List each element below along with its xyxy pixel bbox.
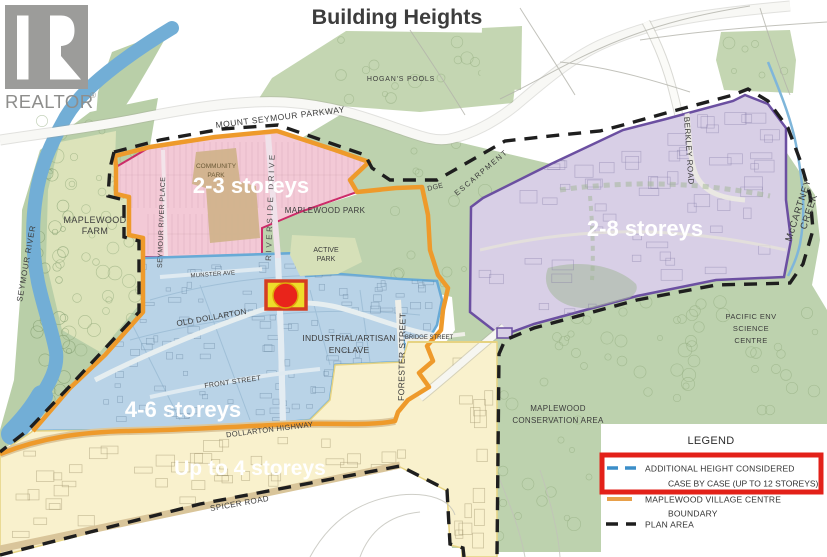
svg-text:INDUSTRIAL/ARTISAN: INDUSTRIAL/ARTISAN — [302, 333, 395, 343]
svg-text:FORESTER STREET: FORESTER STREET — [396, 313, 408, 401]
svg-text:MAPLEWOOD: MAPLEWOOD — [530, 404, 586, 413]
svg-text:®: ® — [90, 91, 96, 100]
svg-text:PARK: PARK — [317, 256, 336, 263]
svg-text:ACTIVE: ACTIVE — [313, 247, 339, 254]
svg-text:2-3 storeys: 2-3 storeys — [193, 173, 309, 198]
svg-text:COMMUNITY: COMMUNITY — [196, 163, 237, 170]
svg-text:ADDITIONAL HEIGHT CONSIDERED: ADDITIONAL HEIGHT CONSIDERED — [645, 464, 795, 474]
svg-text:Building Heights: Building Heights — [312, 5, 483, 29]
svg-text:Up to 4 storeys: Up to 4 storeys — [174, 457, 326, 480]
svg-text:HOGAN'S POOLS: HOGAN'S POOLS — [367, 76, 435, 83]
svg-text:MAPLEWOOD: MAPLEWOOD — [63, 215, 126, 225]
svg-text:BRIDGE STREET: BRIDGE STREET — [405, 335, 454, 341]
svg-text:REALTOR: REALTOR — [5, 91, 93, 112]
svg-text:LEGEND: LEGEND — [687, 435, 734, 447]
svg-text:SCIENCE: SCIENCE — [733, 324, 769, 333]
svg-text:CASE BY CASE (UP TO 12 STOREYS: CASE BY CASE (UP TO 12 STOREYS) — [668, 479, 819, 489]
svg-text:MAPLEWOOD PARK: MAPLEWOOD PARK — [285, 206, 366, 215]
svg-text:CONSERVATION AREA: CONSERVATION AREA — [512, 416, 604, 425]
svg-text:FARM: FARM — [82, 226, 109, 236]
svg-text:2-8 storeys: 2-8 storeys — [587, 216, 703, 241]
svg-text:MAPLEWOOD VILLAGE CENTRE: MAPLEWOOD VILLAGE CENTRE — [645, 495, 781, 505]
svg-text:PACIFIC ENV: PACIFIC ENV — [726, 312, 777, 321]
svg-text:CENTRE: CENTRE — [734, 336, 767, 345]
svg-text:ENCLAVE: ENCLAVE — [329, 345, 370, 355]
svg-text:PLAN AREA: PLAN AREA — [645, 520, 694, 530]
svg-text:4-6 storeys: 4-6 storeys — [125, 397, 241, 422]
svg-text:BOUNDARY: BOUNDARY — [668, 509, 718, 519]
